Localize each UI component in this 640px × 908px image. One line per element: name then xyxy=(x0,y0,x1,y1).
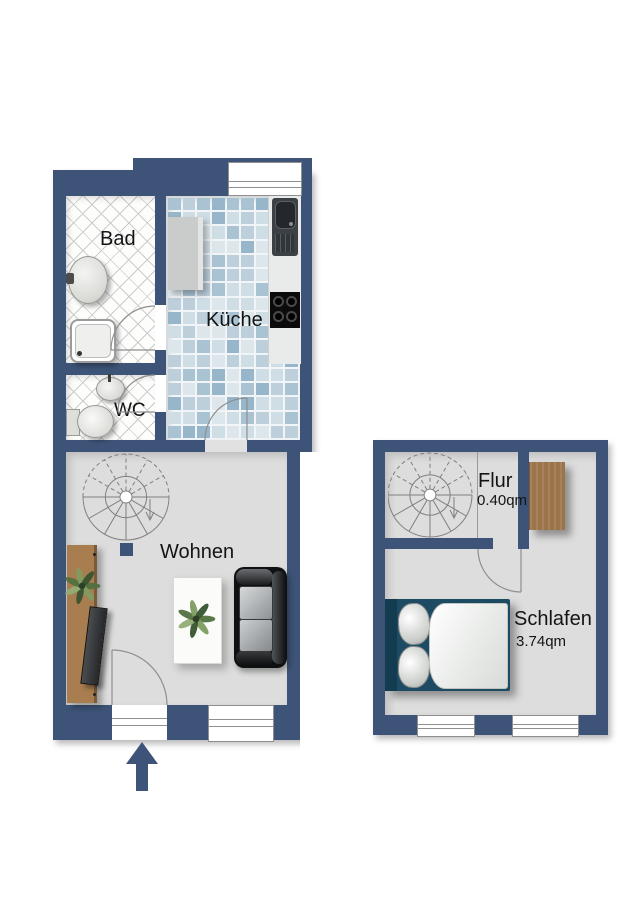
door-arcs-overlay xyxy=(0,0,640,908)
door-swing-entrance xyxy=(112,650,167,705)
door-swing-wc xyxy=(118,375,155,412)
door-swing-bad xyxy=(111,306,155,350)
floorplan-canvas: Bad Küche WC Wohnen Flur 0.40qm S xyxy=(0,0,640,908)
door-swing-upper xyxy=(478,549,521,592)
door-swing-kitchen xyxy=(205,398,247,440)
